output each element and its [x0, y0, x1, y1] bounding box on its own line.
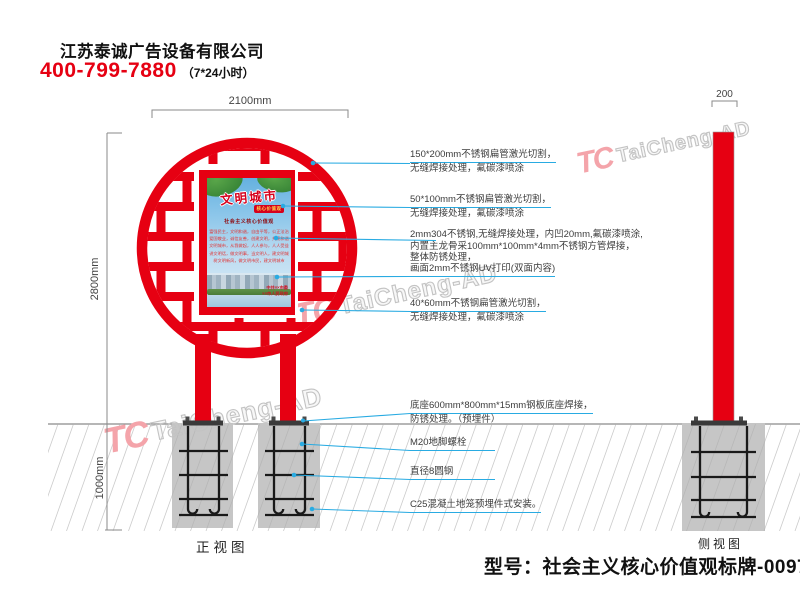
- side-view-pole: [713, 132, 734, 424]
- dimension-side-thickness-label: 200: [716, 89, 733, 100]
- taicheng-logo-icon: TC: [290, 292, 337, 334]
- callout-note-cabinet: 2mm304不锈钢,无缝焊接处理，内凹20mm,氟碳漆喷涂, 内置主龙骨采100…: [410, 229, 643, 264]
- poster-headline: 社会主义核心价值观: [207, 218, 291, 225]
- poster-row: 爱国敬业，诚信友善，创建文明，共建和谐: [209, 235, 289, 242]
- callout-note-anchor-bolt: M20地脚螺栓: [410, 437, 495, 451]
- page-root: { "header": { "company": "江苏泰诚广告设备有限公司",…: [0, 0, 800, 600]
- dimension-width-label: 2100mm: [229, 95, 272, 107]
- callout-note-top-tube: 150*200mm不锈钢扁管激光切割， 无缝焊接处理，氟碳漆喷涂: [410, 149, 556, 174]
- poster-row: 文明城市，从我做起，人人参与，人人受益: [209, 242, 289, 249]
- sign-right-leg: [280, 334, 296, 424]
- dimension-height-label: 2800mm: [89, 258, 101, 301]
- model-number: 型号：社会主义核心价值观标牌-0097: [484, 552, 800, 579]
- poster-row: 讲文明话，做文明事，当文明人，建文明城: [209, 250, 289, 257]
- front-view-label: 正视图: [196, 536, 249, 556]
- callout-note-uv-print: 画面2mm不锈钢UV打印(双面内容): [410, 263, 555, 277]
- phone-row: 400-799-7880 （7*24小时）: [40, 59, 254, 83]
- watermark-text: TaiCheng-AD: [149, 383, 324, 445]
- poster-row: 富强民主，文明和谐，自由平等，公正法治: [209, 228, 289, 235]
- watermark-bottom-left: TC TaiCheng-AD: [100, 378, 325, 460]
- callout-lines-layer: [0, 0, 800, 600]
- dimension-height: [107, 133, 122, 424]
- dimension-side-thickness: [712, 101, 737, 107]
- poster-text-rows: 富强民主，文明和谐，自由平等，公正法治 爱国敬业，诚信友善，创建文明，共建和谐 …: [209, 228, 289, 264]
- structure-layer: 2100mm 2800mm 1000mm 200: [0, 0, 800, 600]
- poster-footer: 中共××市委 ××市人民政府: [262, 285, 288, 296]
- sign-left-leg: [195, 334, 211, 424]
- poster-artwork: 文明城市 核心价值观 社会主义核心价值观 富强民主，文明和谐，自由平等，公正法治…: [207, 178, 291, 307]
- ground-layer: [0, 0, 800, 600]
- phone-hours: （7*24小时）: [182, 64, 255, 81]
- taicheng-logo-icon: TC: [100, 415, 151, 459]
- phone-number: 400-799-7880: [40, 59, 177, 83]
- foundation-block-left: [172, 423, 233, 528]
- taicheng-logo-icon: TC: [574, 143, 615, 180]
- callout-note-base-plate: 底座600mm*800mm*15mm钢板底座焊接， 防锈处理。（预埋件）: [410, 400, 593, 425]
- foundation-block-side: [682, 423, 765, 531]
- callout-note-lattice-tube: 40*60mm不锈钢扁管激光切割， 无缝焊接处理，氟碳漆喷涂: [410, 298, 546, 323]
- watermark-text: TaiCheng-AD: [615, 118, 752, 166]
- callout-note-rebar: 直径8圆钢: [410, 466, 495, 480]
- dimension-depth: [105, 424, 122, 530]
- callout-note-concrete: C25混凝土地笼预埋件式安装。: [410, 499, 541, 513]
- dimension-depth-label: 1000mm: [94, 457, 106, 500]
- foundation-block-right: [258, 423, 320, 528]
- dimension-width: [152, 110, 348, 118]
- poster-footer-line: 中共××市委: [262, 285, 288, 291]
- poster-row: 树文明新风，做文明市民，建文明城市: [209, 257, 289, 264]
- poster-footer-line: ××市人民政府: [262, 291, 288, 297]
- side-view-label: 侧视图: [698, 535, 743, 552]
- watermark-top-right: TC TaiCheng-AD: [574, 113, 754, 179]
- poster-banner: 核心价值观: [254, 205, 284, 213]
- callout-note-frame-tube: 50*100mm不锈钢扁管激光切割， 无缝焊接处理，氟碳漆喷涂: [410, 194, 551, 219]
- river: [207, 295, 291, 307]
